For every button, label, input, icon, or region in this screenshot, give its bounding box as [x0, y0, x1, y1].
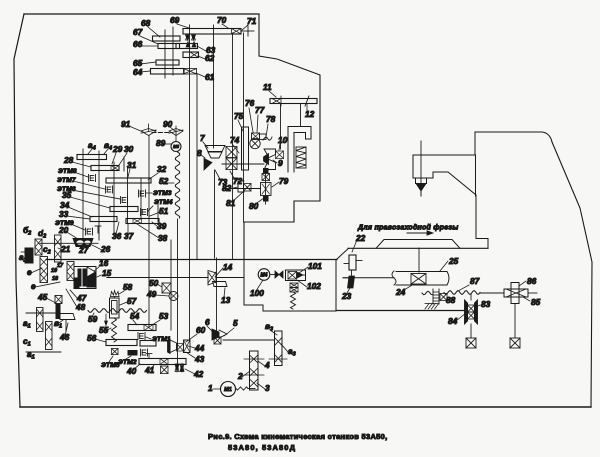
- svg-text:3: 3: [265, 383, 270, 393]
- svg-text:12: 12: [305, 109, 315, 119]
- svg-text:78: 78: [266, 114, 276, 124]
- svg-text:68: 68: [141, 18, 151, 28]
- svg-text:83: 83: [481, 299, 491, 309]
- svg-text:ЭТМ5: ЭТМ5: [101, 362, 120, 369]
- svg-text:15: 15: [102, 268, 112, 278]
- svg-text:с2: с2: [43, 244, 51, 256]
- svg-text:e: e: [31, 281, 36, 291]
- svg-text:89: 89: [156, 138, 166, 148]
- svg-text:4: 4: [264, 360, 270, 370]
- svg-text:82: 82: [222, 183, 232, 193]
- svg-text:19: 19: [51, 268, 58, 274]
- svg-text:1: 1: [208, 383, 213, 393]
- svg-text:10: 10: [278, 135, 288, 145]
- svg-text:37: 37: [124, 231, 134, 241]
- svg-text:29: 29: [112, 144, 123, 154]
- svg-text:60: 60: [196, 325, 206, 335]
- svg-text:33: 33: [59, 209, 69, 219]
- svg-text:76: 76: [245, 98, 255, 108]
- svg-text:79: 79: [279, 176, 289, 186]
- svg-text:б2: б2: [23, 225, 31, 237]
- svg-text:26: 26: [100, 244, 111, 254]
- svg-text:М1: М1: [224, 387, 232, 393]
- svg-text:а3: а3: [288, 346, 296, 358]
- svg-text:М5: М5: [173, 144, 179, 149]
- svg-text:11: 11: [263, 82, 272, 92]
- svg-text:53А80, 53А80Д: 53А80, 53А80Д: [228, 443, 296, 452]
- svg-text:53: 53: [159, 311, 169, 321]
- svg-text:75: 75: [234, 111, 244, 121]
- svg-text:27: 27: [78, 245, 89, 255]
- svg-text:e: e: [27, 267, 32, 277]
- svg-text:25: 25: [448, 256, 459, 266]
- svg-text:17: 17: [57, 263, 64, 269]
- svg-text:43: 43: [194, 354, 205, 364]
- svg-text:Рис.9. Схема кинематическая ст: Рис.9. Схема кинематическая станков 53А5…: [208, 432, 388, 441]
- svg-text:24: 24: [395, 287, 406, 297]
- svg-text:6: 6: [205, 317, 210, 327]
- svg-text:ЭТМ8: ЭТМ8: [58, 168, 77, 175]
- svg-text:56: 56: [87, 333, 97, 343]
- svg-text:87: 87: [470, 276, 480, 286]
- svg-text:85: 85: [531, 297, 541, 307]
- svg-text:77: 77: [255, 105, 265, 115]
- svg-text:61: 61: [205, 72, 215, 82]
- svg-text:40: 40: [126, 366, 137, 376]
- svg-text:54: 54: [130, 311, 140, 321]
- svg-text:35: 35: [62, 190, 72, 200]
- svg-text:ЭТМ4: ЭТМ4: [154, 199, 173, 206]
- svg-text:7: 7: [200, 133, 205, 143]
- svg-text:49: 49: [146, 289, 157, 299]
- svg-text:ЭТМ2: ЭТМ2: [118, 359, 137, 366]
- svg-text:18: 18: [52, 276, 59, 282]
- svg-text:32: 32: [157, 164, 167, 174]
- svg-text:46: 46: [59, 332, 70, 342]
- svg-text:52: 52: [159, 176, 169, 186]
- svg-text:88: 88: [446, 295, 456, 305]
- svg-text:а1: а1: [23, 318, 31, 330]
- svg-text:45: 45: [37, 292, 48, 302]
- svg-text:М4: М4: [261, 272, 268, 278]
- svg-text:36: 36: [112, 231, 122, 241]
- svg-text:14: 14: [223, 262, 233, 272]
- svg-text:2: 2: [237, 371, 243, 381]
- svg-text:21: 21: [60, 244, 71, 254]
- svg-text:62: 62: [205, 53, 215, 63]
- svg-text:67: 67: [133, 27, 143, 37]
- svg-text:16: 16: [99, 258, 109, 268]
- svg-text:28: 28: [63, 155, 74, 165]
- svg-text:13: 13: [221, 295, 231, 305]
- svg-text:9: 9: [278, 158, 283, 168]
- svg-text:50: 50: [149, 278, 159, 288]
- svg-text:с1: с1: [23, 336, 31, 348]
- svg-text:ЭТМ3: ЭТМ3: [153, 190, 172, 197]
- svg-text:69: 69: [170, 15, 180, 25]
- svg-text:8: 8: [197, 148, 202, 158]
- svg-text:66: 66: [133, 39, 143, 49]
- svg-text:31: 31: [127, 160, 137, 170]
- svg-text:44: 44: [194, 343, 205, 353]
- svg-text:в3: в3: [265, 321, 273, 333]
- svg-text:57: 57: [127, 296, 137, 306]
- svg-text:а1: а1: [27, 349, 35, 361]
- svg-text:30: 30: [124, 144, 134, 154]
- svg-text:70: 70: [217, 15, 227, 25]
- svg-text:в4: в4: [104, 140, 112, 152]
- svg-text:58: 58: [123, 282, 133, 292]
- svg-text:101: 101: [308, 261, 322, 271]
- svg-text:Для правозаходной фрезы: Для правозаходной фрезы: [357, 224, 458, 232]
- svg-text:23: 23: [341, 291, 352, 301]
- svg-text:91: 91: [121, 119, 131, 129]
- svg-text:86: 86: [527, 276, 537, 286]
- svg-text:5: 5: [233, 318, 238, 328]
- svg-text:ЭТМ7: ЭТМ7: [57, 177, 77, 184]
- svg-text:74: 74: [230, 135, 240, 145]
- svg-text:20: 20: [58, 225, 69, 235]
- svg-text:102: 102: [307, 281, 321, 291]
- svg-text:d2: d2: [38, 228, 46, 240]
- svg-text:51: 51: [159, 206, 169, 216]
- svg-text:71: 71: [247, 16, 257, 26]
- svg-text:39: 39: [157, 221, 167, 231]
